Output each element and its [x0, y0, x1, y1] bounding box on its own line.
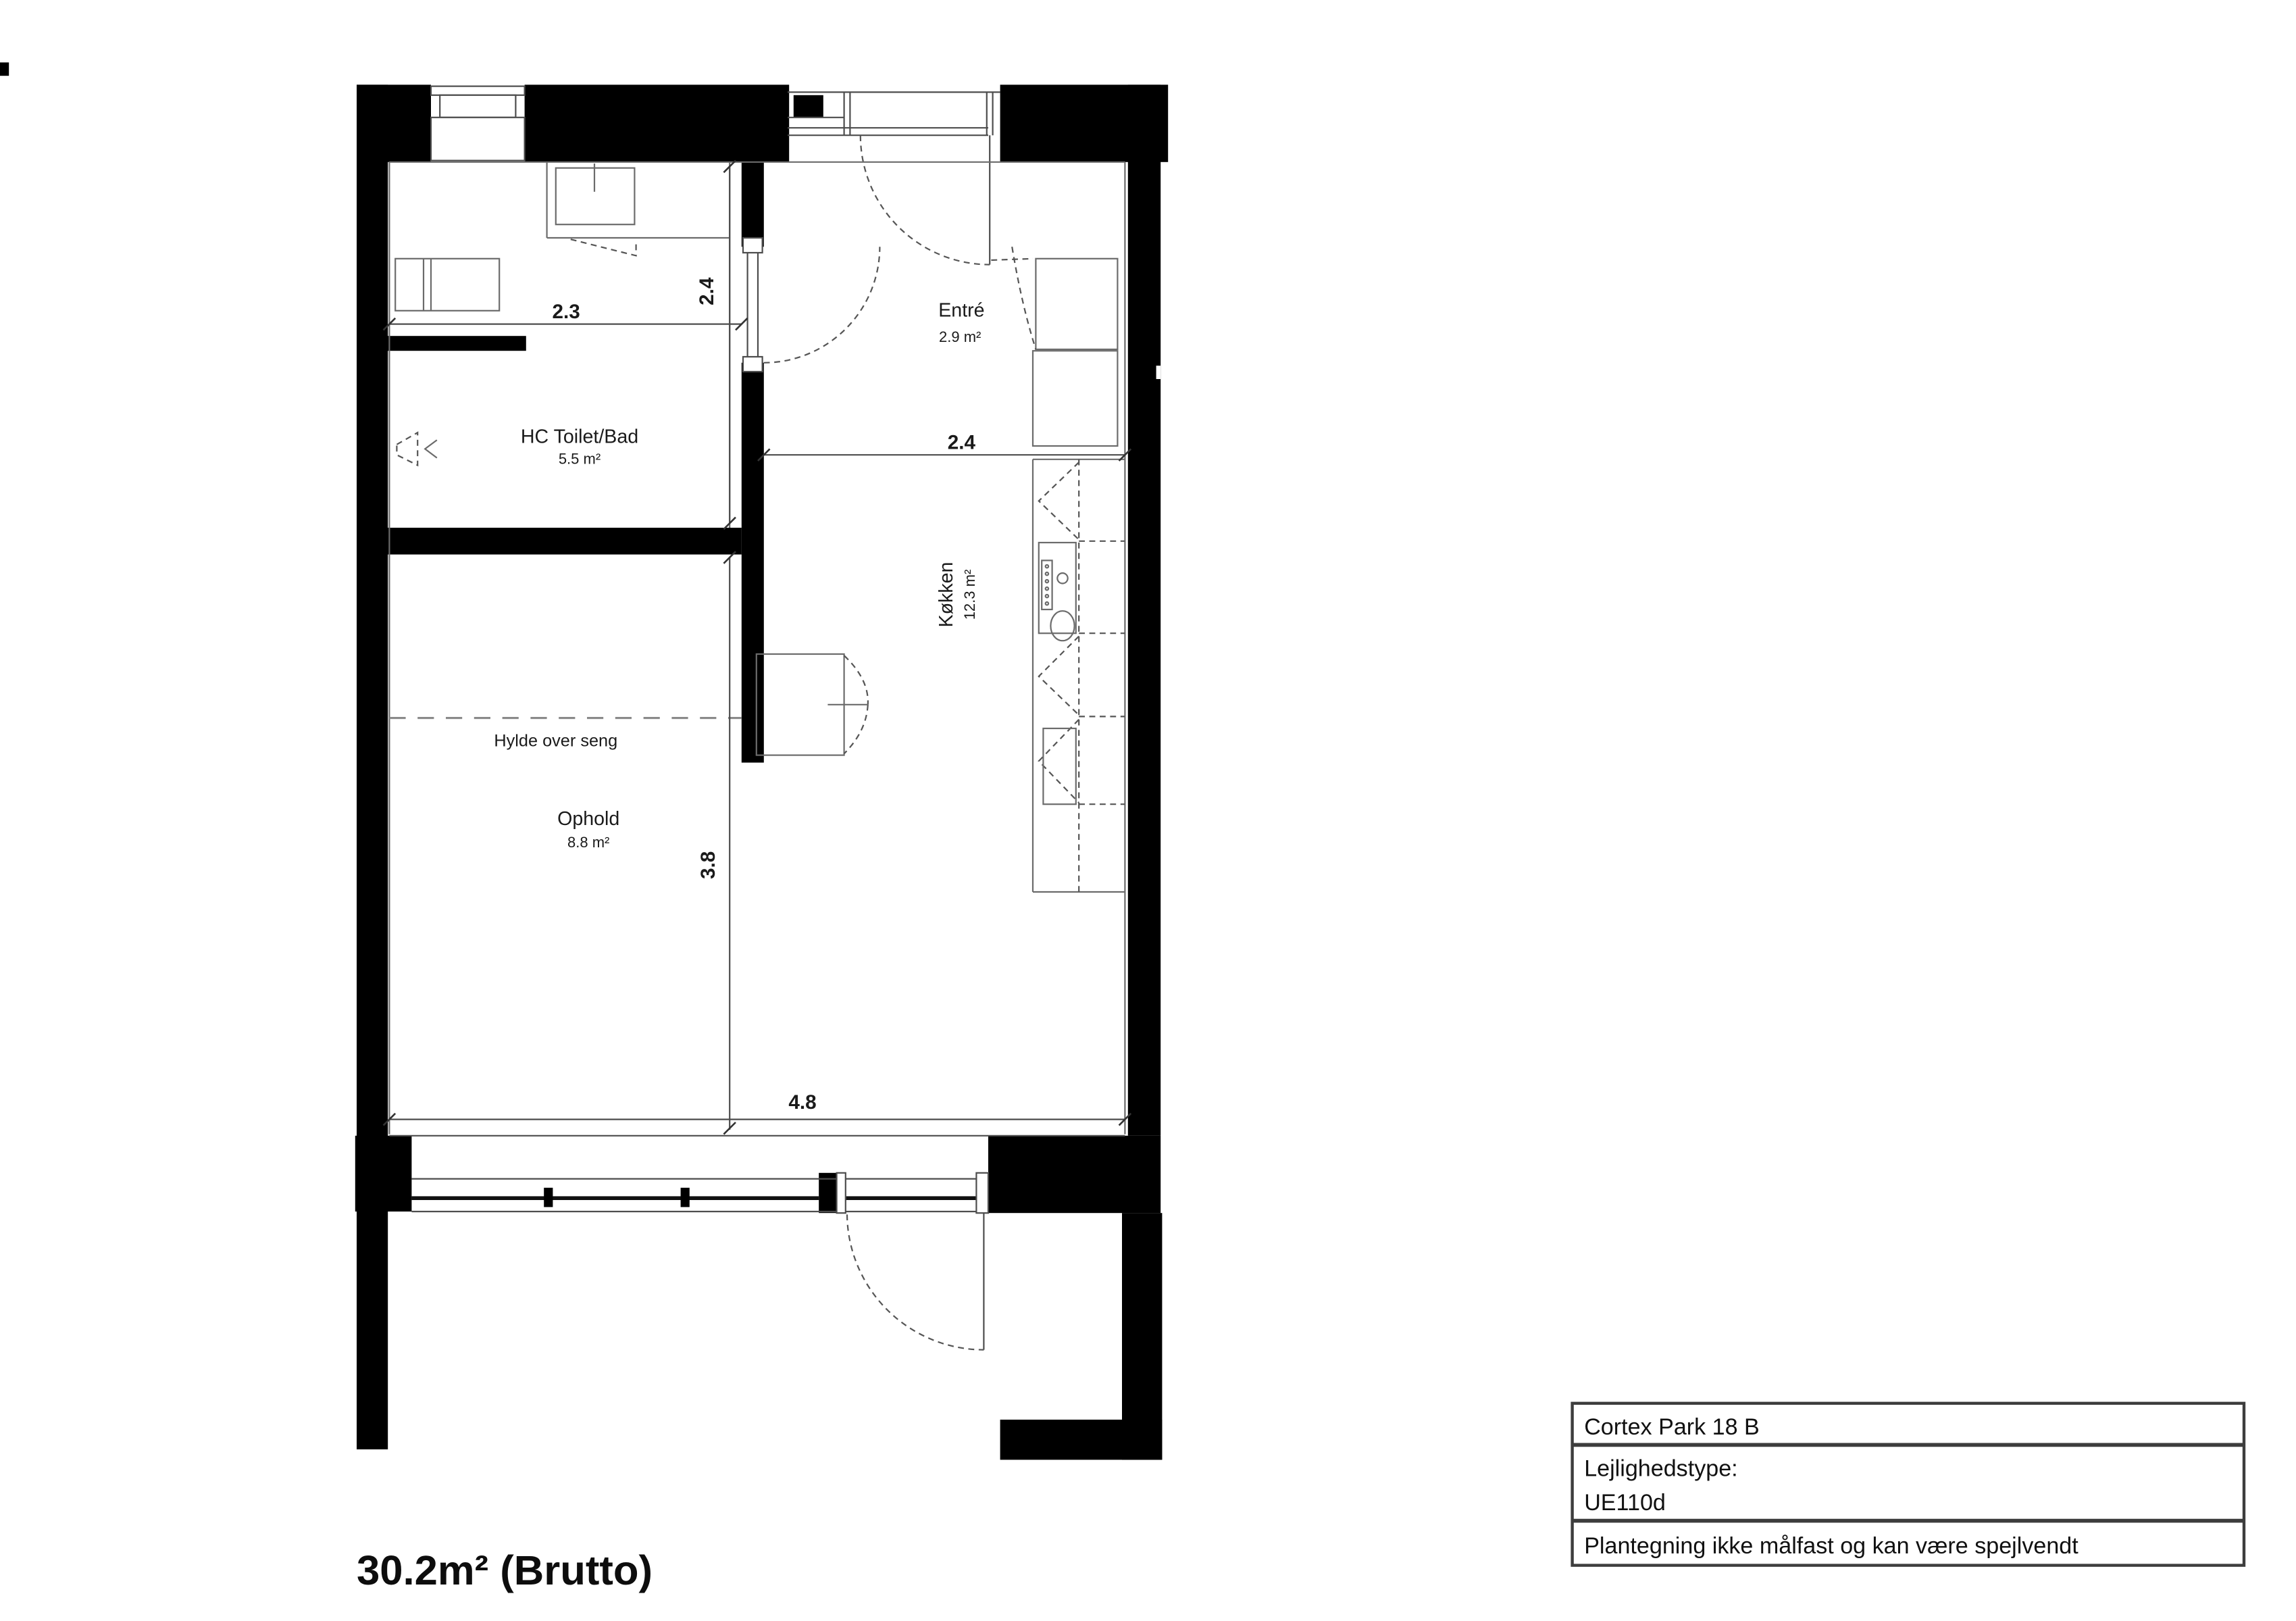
wardrobe-1: [1036, 259, 1117, 349]
room-area-entre: 2.9 m²: [939, 328, 981, 345]
room-area-ophold: 8.8 m²: [567, 834, 609, 851]
room-label-ophold: Ophold: [557, 808, 619, 830]
window-top-left-sill: [431, 118, 525, 161]
window-mullion-1: [544, 1188, 553, 1207]
wall-ophold-kokken: [742, 363, 764, 763]
window-mullion-2: [681, 1188, 690, 1207]
kitchen-faucet-icon: [1057, 573, 1067, 583]
window-top-left-lip: [431, 86, 525, 95]
terrace-door-frame-left: [837, 1173, 846, 1213]
wardrobe-door-swing: [1012, 247, 1036, 349]
wall-top-mid: [525, 84, 790, 161]
wardrobe-2: [1033, 351, 1117, 446]
wall-band-right: [988, 1136, 1160, 1213]
window-top-left-frame: [440, 95, 515, 118]
wall-left: [357, 84, 388, 1449]
title-type-value: UE110d: [1584, 1490, 1666, 1516]
toilet-door-arc: [764, 247, 880, 363]
floor-plan-drawing: Entré 2.9 m² HC Toilet/Bad 5.5 m² Køkken…: [0, 0, 2296, 1620]
cabinet-wedge-2: [1039, 637, 1079, 716]
floor-plan-page: Entré 2.9 m² HC Toilet/Bad 5.5 m² Køkken…: [0, 0, 2296, 1620]
wall-terrace-foot: [1000, 1420, 1163, 1460]
terrace-door-arc: [847, 1214, 984, 1349]
shower-symbol: [397, 432, 417, 465]
title-type-label: Lejlighedstype:: [1584, 1456, 1737, 1482]
drainer-dot: [1046, 580, 1048, 582]
toilet-door-frame-bottom: [743, 357, 763, 372]
fold-table-arc-top: [844, 655, 868, 705]
walls: [0, 62, 1168, 1460]
toilet-cabinet-door-mark: [571, 239, 636, 255]
wall-toilet-entre-upper: [742, 162, 764, 247]
drainer-dot: [1046, 587, 1048, 590]
title-address: Cortex Park 18 B: [1584, 1414, 1760, 1440]
wall-toilet-stub: [385, 336, 526, 351]
dim-text-2_4v: 2.4: [696, 277, 718, 305]
drainer-dot: [1046, 595, 1048, 597]
dim-text-2_4h: 2.4: [948, 431, 976, 453]
wall-band-left-corner: [355, 1136, 412, 1212]
terrace-door-frame-right: [976, 1173, 988, 1213]
room-area-kokken: 12.3 m²: [961, 570, 978, 620]
kitchen-sink-bowl: [1050, 611, 1074, 641]
room-area-toilet: 5.5 m²: [559, 450, 601, 467]
labels: Entré 2.9 m² HC Toilet/Bad 5.5 m² Køkken…: [357, 277, 985, 1594]
edge-artifact: [0, 62, 9, 76]
drainer-dot: [1046, 572, 1048, 575]
dim-text-2_3: 2.3: [553, 301, 580, 323]
cabinet-wedge-1: [1039, 462, 1079, 539]
wall-right: [1128, 84, 1160, 1135]
kitchen-sink-unit: [1039, 543, 1076, 633]
room-label-kokken: Køkken: [936, 562, 957, 628]
title-disclaimer: Plantegning ikke målfast og kan være spe…: [1584, 1533, 2078, 1559]
annotation-shelf: Hylde over seng: [494, 731, 617, 750]
room-label-entre: Entré: [938, 300, 984, 322]
wall-joint-notch: [1156, 366, 1161, 379]
entrance-door-arc: [861, 135, 990, 264]
room-label-toilet: HC Toilet/Bad: [521, 426, 638, 448]
toilet-door-frame-top: [743, 238, 763, 253]
gross-area-text: 30.2m² (Brutto): [357, 1547, 653, 1594]
toilet-washer: [395, 259, 499, 311]
cabinet-wedge-3: [1039, 720, 1079, 803]
drainer-dot: [1046, 602, 1048, 605]
kitchen-appliance: [1043, 728, 1075, 804]
shower-chevron-icon: [425, 440, 437, 457]
dim-text-4_8: 4.8: [788, 1091, 816, 1114]
title-block: Cortex Park 18 B Lejlighedstype: UE110d …: [1573, 1403, 2244, 1566]
drainer-dot: [1046, 565, 1048, 568]
dim-text-3_8: 3.8: [697, 851, 719, 879]
fold-table-arc-bottom: [844, 705, 868, 754]
entrance-door-leaf: [794, 95, 823, 118]
wall-toilet-divider: [386, 528, 742, 555]
wardrobe-swing-link: [991, 259, 1033, 260]
